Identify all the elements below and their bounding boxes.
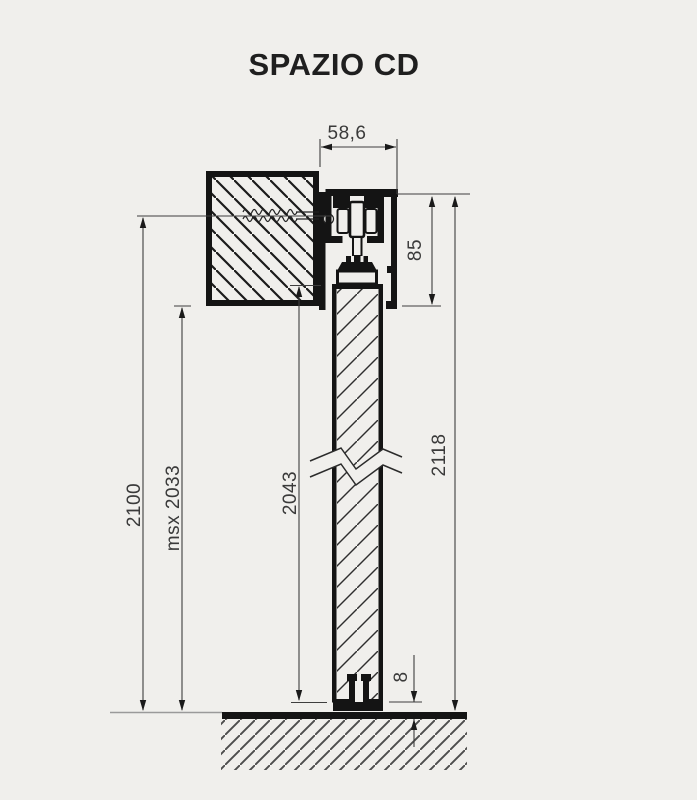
track-right-jaw <box>364 196 381 208</box>
dim-label-overall-height: 2118 <box>429 434 450 477</box>
fascia-foot <box>386 301 397 309</box>
plate-nub-lower <box>315 262 319 269</box>
side-roller-right <box>366 209 377 233</box>
arrow-down <box>179 700 185 711</box>
wall-hatch <box>212 177 316 303</box>
fascia-cap <box>384 189 399 197</box>
technical-drawing: 58,6 85 2118 2100 msx 2033 2043 8 <box>0 0 697 800</box>
floor-line <box>222 712 467 719</box>
fascia-bar <box>391 197 397 303</box>
dim-label-installation-height: 2100 <box>124 483 145 527</box>
door-panel <box>310 284 402 711</box>
door-clamp <box>338 271 377 284</box>
hanger-bolt <box>353 237 362 256</box>
track-right-lip <box>367 236 384 243</box>
dim-label-door-height: 2043 <box>280 471 301 515</box>
track-left-wall <box>326 196 332 243</box>
door-right-edge <box>379 284 384 702</box>
track-left-jaw <box>333 196 350 208</box>
plate-nub-upper <box>315 228 319 235</box>
arrow-up <box>452 196 458 207</box>
dim-label-max-passage: msx 2033 <box>163 465 184 551</box>
guide-base <box>333 702 383 711</box>
ground-hatch <box>221 719 467 770</box>
arrow-down <box>411 691 417 702</box>
dim-label-floor-clearance: 8 <box>391 671 412 682</box>
wall-section <box>209 174 316 303</box>
guide-cap-left <box>347 674 357 681</box>
arrow-down <box>429 294 435 305</box>
arrow-up <box>179 307 185 318</box>
arrow-right <box>385 144 396 150</box>
mounting-plate <box>319 192 326 310</box>
dim-label-system-depth: 58,6 <box>328 123 367 144</box>
fascia-nub <box>387 266 391 273</box>
dim-label-header-height: 85 <box>405 239 426 261</box>
nut-notch-right <box>361 256 364 262</box>
arrow-up <box>429 196 435 207</box>
guide-cap-right <box>361 674 371 681</box>
fascia-profile <box>384 189 399 309</box>
arrow-down <box>296 690 302 701</box>
door-hatch <box>337 289 378 699</box>
guide-bar-right <box>363 681 369 702</box>
arrow-down <box>140 700 146 711</box>
track-top <box>326 189 385 196</box>
guide-bar-left <box>349 681 355 702</box>
diagram-page: SPAZIO CD <box>0 0 697 800</box>
nut-notch-left <box>351 256 354 262</box>
center-wheel <box>350 202 364 237</box>
arrow-left <box>321 144 332 150</box>
hanger-nut <box>346 256 368 262</box>
door-left-edge <box>332 284 337 702</box>
track-left-lip <box>326 236 343 243</box>
side-roller-left <box>338 209 349 233</box>
arrow-down <box>452 700 458 711</box>
arrow-up <box>140 217 146 228</box>
door-top-edge <box>332 284 383 289</box>
